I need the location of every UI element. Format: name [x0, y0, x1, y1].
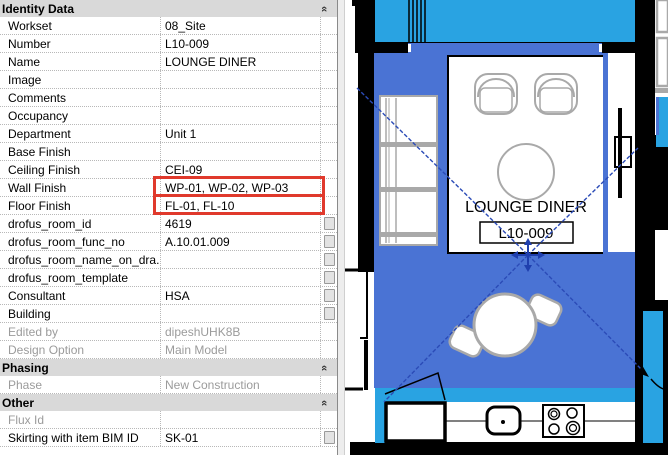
room-boundary-line — [603, 53, 608, 385]
property-label: Flux Id — [0, 411, 160, 428]
room-number-label[interactable]: L10-009 — [498, 225, 553, 242]
property-value: New Construction — [160, 376, 320, 393]
dining-table — [474, 294, 536, 356]
property-label: Skirting with item BIM ID — [0, 429, 160, 446]
room-name-label[interactable]: LOUNGE DINER — [465, 199, 587, 216]
property-button-cell — [320, 161, 337, 178]
browse-button[interactable] — [324, 235, 335, 248]
adjacent-room-right[interactable] — [643, 311, 665, 443]
property-label: Phase — [0, 376, 160, 393]
browse-button[interactable] — [324, 217, 335, 230]
property-button-cell — [320, 89, 337, 106]
armchair-left — [475, 74, 517, 114]
property-label: drofus_room_template — [0, 269, 160, 286]
property-row: Floor FinishFL-01, FL-10 — [0, 197, 337, 215]
property-button-cell — [320, 179, 337, 196]
section-title: Identity Data — [2, 2, 74, 16]
property-row: Edited bydipeshUHK8B — [0, 323, 337, 341]
property-row: NumberL10-009 — [0, 35, 337, 53]
collapse-chevron-icon[interactable]: « — [319, 399, 329, 405]
property-label: Ceiling Finish — [0, 161, 160, 178]
right-wall-sliver — [663, 311, 668, 443]
property-row: Design OptionMain Model — [0, 341, 337, 359]
property-row: Image — [0, 71, 337, 89]
property-label: Comments — [0, 89, 160, 106]
sink — [487, 407, 520, 434]
property-label: Consultant — [0, 287, 160, 304]
property-value[interactable]: A.10.01.009 — [160, 233, 320, 250]
browse-button[interactable] — [324, 431, 335, 444]
property-value[interactable]: L10-009 — [160, 35, 320, 52]
property-button-cell — [320, 323, 337, 340]
properties-panel[interactable]: Identity Data«Workset08_SiteNumberL10-00… — [0, 0, 337, 455]
property-label: Image — [0, 71, 160, 88]
property-row: Wall FinishWP-01, WP-02, WP-03 — [0, 179, 337, 197]
collapse-chevron-icon[interactable]: « — [319, 364, 329, 370]
section-header-identity-data: Identity Data« — [0, 0, 337, 17]
property-label: Building — [0, 305, 160, 322]
property-button-cell — [320, 17, 337, 34]
kitchen-floor-strip — [375, 388, 635, 402]
property-button-cell — [320, 269, 337, 286]
property-label: Design Option — [0, 341, 160, 358]
property-button-cell — [320, 215, 337, 232]
property-label: drofus_room_func_no — [0, 233, 160, 250]
property-value[interactable] — [160, 107, 320, 124]
property-label: Workset — [0, 17, 160, 34]
property-label: drofus_room_id — [0, 215, 160, 232]
property-button-cell — [320, 341, 337, 358]
property-button-cell — [320, 233, 337, 250]
section-title: Phasing — [2, 361, 49, 375]
property-row: drofus_room_func_noA.10.01.009 — [0, 233, 337, 251]
property-row: Skirting with item BIM IDSK-01 — [0, 429, 337, 447]
property-row: DepartmentUnit 1 — [0, 125, 337, 143]
property-value[interactable]: WP-01, WP-02, WP-03 — [160, 179, 320, 196]
top-wall-opening — [408, 43, 602, 53]
property-value — [160, 411, 320, 428]
property-value: Main Model — [160, 341, 320, 358]
property-value[interactable]: 08_Site — [160, 17, 320, 34]
door-leaf — [618, 108, 622, 198]
browse-button[interactable] — [324, 253, 335, 266]
right-corridor-fixtures — [655, 0, 668, 147]
property-label: drofus_room_name_on_dra... — [0, 251, 160, 268]
property-button-cell — [320, 287, 337, 304]
property-value: dipeshUHK8B — [160, 323, 320, 340]
property-button-cell — [320, 35, 337, 52]
collapse-chevron-icon[interactable]: « — [319, 5, 329, 11]
adjacent-room-top[interactable] — [375, 0, 635, 42]
property-value[interactable] — [160, 251, 320, 268]
armchair-right — [535, 74, 577, 114]
property-label: Wall Finish — [0, 179, 160, 196]
property-value[interactable]: HSA — [160, 287, 320, 304]
property-value[interactable]: SK-01 — [160, 429, 320, 446]
property-label: Occupancy — [0, 107, 160, 124]
section-title: Other — [2, 396, 34, 410]
property-row: drofus_room_name_on_dra... — [0, 251, 337, 269]
browse-button[interactable] — [324, 307, 335, 320]
floorplan-canvas[interactable]: LOUNGE DINER L10-009 — [345, 0, 668, 455]
property-row: PhaseNew Construction — [0, 376, 337, 394]
property-row: Workset08_Site — [0, 17, 337, 35]
property-value[interactable] — [160, 305, 320, 322]
property-button-cell — [320, 251, 337, 268]
property-value[interactable]: CEI-09 — [160, 161, 320, 178]
property-value[interactable] — [160, 269, 320, 286]
property-button-cell — [320, 107, 337, 124]
property-button-cell — [320, 411, 337, 428]
lounge-table — [498, 144, 554, 200]
kitchen-cabinet — [386, 403, 445, 441]
property-value[interactable] — [160, 71, 320, 88]
property-value[interactable]: Unit 1 — [160, 125, 320, 142]
property-row: Base Finish — [0, 143, 337, 161]
section-header-other: Other« — [0, 394, 337, 411]
section-header-phasing: Phasing« — [0, 359, 337, 376]
property-label: Base Finish — [0, 143, 160, 160]
property-label: Department — [0, 125, 160, 142]
property-row: ConsultantHSA — [0, 287, 337, 305]
property-label: Number — [0, 35, 160, 52]
property-button-cell — [320, 429, 337, 446]
property-value[interactable] — [160, 89, 320, 106]
property-label: Name — [0, 53, 160, 70]
property-row: Flux Id — [0, 411, 337, 429]
property-row: Comments — [0, 89, 337, 107]
property-value[interactable]: 4619 — [160, 215, 320, 232]
property-value[interactable] — [160, 143, 320, 160]
property-value[interactable]: FL-01, FL-10 — [160, 197, 320, 214]
property-value[interactable]: LOUNGE DINER — [160, 53, 320, 70]
property-label: Edited by — [0, 323, 160, 340]
property-label: Floor Finish — [0, 197, 160, 214]
kitchen-floor-left — [375, 398, 385, 443]
property-row: drofus_room_id4619 — [0, 215, 337, 233]
property-button-cell — [320, 71, 337, 88]
property-button-cell — [320, 53, 337, 70]
property-row: drofus_room_template — [0, 269, 337, 287]
property-row: Ceiling FinishCEI-09 — [0, 161, 337, 179]
opening-tick-right — [599, 44, 602, 52]
property-button-cell — [320, 305, 337, 322]
property-row: NameLOUNGE DINER — [0, 53, 337, 71]
opening-tick-left — [408, 44, 411, 52]
property-button-cell — [320, 376, 337, 393]
property-button-cell — [320, 197, 337, 214]
browse-button[interactable] — [324, 271, 335, 284]
property-button-cell — [320, 143, 337, 160]
property-row: Building — [0, 305, 337, 323]
browse-button[interactable] — [324, 289, 335, 302]
panel-resize-strip[interactable] — [337, 0, 345, 455]
revit-window: Identity Data«Workset08_SiteNumberL10-00… — [0, 0, 668, 455]
cooktop — [543, 405, 584, 437]
property-button-cell — [320, 125, 337, 142]
property-row: Occupancy — [0, 107, 337, 125]
